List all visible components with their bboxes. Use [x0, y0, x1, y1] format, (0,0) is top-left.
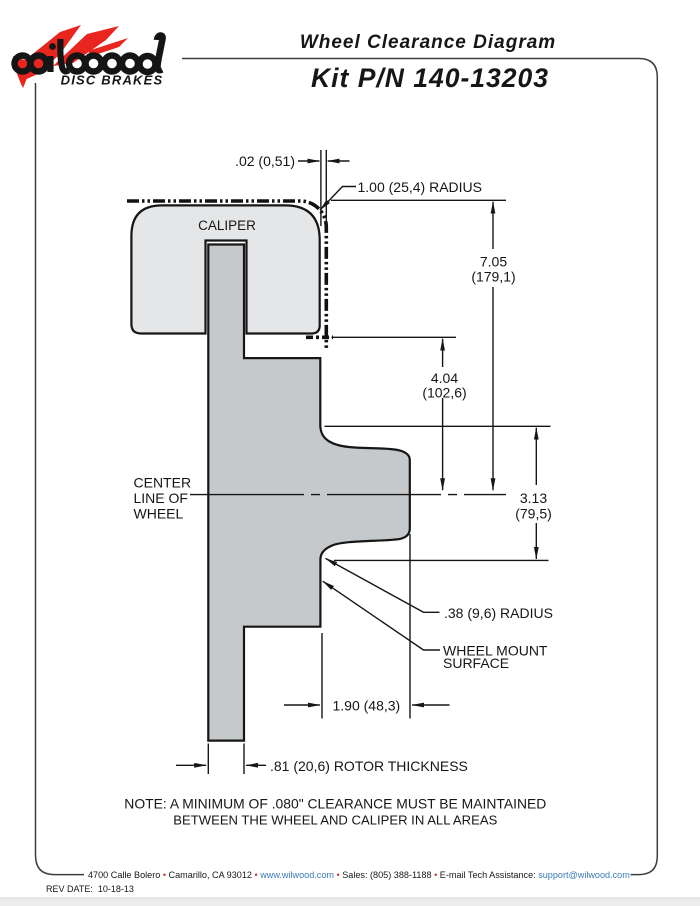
svg-text:.02 (0,51): .02 (0,51) [235, 153, 295, 169]
svg-text:LINE OF: LINE OF [134, 490, 188, 506]
svg-text:1.00 (25,4) RADIUS: 1.00 (25,4) RADIUS [358, 179, 483, 195]
svg-text:3.13: 3.13 [520, 490, 547, 506]
svg-text:(179,1): (179,1) [471, 269, 515, 285]
svg-text:4700 Calle Bolero • Camarillo,: 4700 Calle Bolero • Camarillo, CA 93012 … [88, 870, 630, 880]
svg-text:(102,6): (102,6) [422, 385, 466, 401]
svg-text:WHEEL: WHEEL [134, 506, 184, 522]
svg-text:Kit P/N 140-13203: Kit P/N 140-13203 [311, 63, 549, 93]
svg-text:7.05: 7.05 [480, 254, 507, 270]
svg-text:(79,5): (79,5) [515, 506, 552, 522]
svg-text:.81 (20,6) ROTOR THICKNESS: .81 (20,6) ROTOR THICKNESS [270, 758, 468, 774]
svg-text:.38 (9,6) RADIUS: .38 (9,6) RADIUS [444, 605, 553, 621]
svg-text:CALIPER: CALIPER [198, 218, 256, 233]
svg-text:SURFACE: SURFACE [443, 655, 509, 671]
svg-text:1.90 (48,3): 1.90 (48,3) [333, 698, 401, 714]
svg-text:REV DATE: 10-18-13: REV DATE: 10-18-13 [46, 884, 134, 894]
svg-text:Wheel Clearance Diagram: Wheel Clearance Diagram [300, 32, 556, 53]
svg-text:BETWEEN THE WHEEL AND CALIPER: BETWEEN THE WHEEL AND CALIPER IN ALL ARE… [173, 812, 497, 827]
svg-text:NOTE: A MINIMUM OF .080" CLEAR: NOTE: A MINIMUM OF .080" CLEARANCE MUST … [124, 796, 546, 812]
svg-text:DISC BRAKES: DISC BRAKES [61, 73, 164, 88]
svg-text:CENTER: CENTER [134, 475, 192, 491]
